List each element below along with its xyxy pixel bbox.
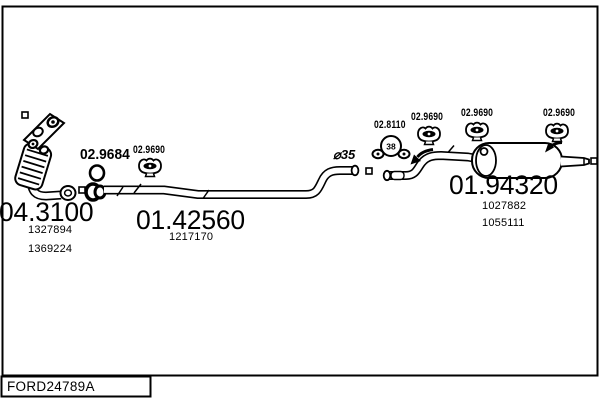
part-code-catalyst: 04.3100 [0, 199, 93, 226]
pipe-diameter-label: ⌀35 [333, 148, 355, 161]
position-marker-square [22, 112, 28, 118]
inlet-open-end [384, 171, 391, 180]
oe-ref: 1027882 [482, 201, 526, 212]
catalytic-converter-drawing [13, 114, 75, 200]
oe-ref: 1327894 [28, 225, 72, 236]
rubber-hanger-icon [139, 159, 161, 177]
oe-ref: 1217170 [169, 232, 213, 243]
part-code-mid-pipe: 01.42560 [136, 207, 245, 234]
mounting-code-hanger: 02.9690 [543, 108, 575, 119]
mounting-code-hanger: 02.9690 [461, 108, 493, 119]
clamp-icon: 38 [373, 136, 410, 158]
drawing-code-label: FORD24789A [7, 380, 95, 394]
rubber-hanger-icon [466, 123, 488, 141]
rubber-hanger-icon [546, 124, 568, 142]
position-marker-square [366, 168, 372, 174]
clamp-size-label: 38 [386, 142, 396, 152]
clamp-slot [391, 172, 404, 180]
mounting-code-clamp: 02.8110 [374, 120, 406, 131]
position-marker-square [79, 187, 85, 193]
part-code-rear-muffler: 01.94320 [449, 172, 558, 199]
position-marker-square [591, 158, 597, 164]
exhaust-diagram: 38 04.3100 1327894 1369224 01.42560 1217… [0, 0, 600, 400]
mounting-code-hanger: 02.9690 [133, 145, 165, 156]
rubber-hanger-icon [418, 127, 440, 145]
oe-ref: 1369224 [28, 244, 72, 255]
weld-tick-mark [448, 146, 454, 153]
mounting-code-hanger: 02.9690 [411, 112, 443, 123]
mounting-code-gasket: 02.9684 [80, 148, 130, 163]
tail-pipe [561, 157, 589, 167]
oe-ref: 1055111 [482, 218, 525, 229]
pipe-open-end [352, 166, 359, 176]
o-ring-gasket-icon [90, 166, 104, 181]
